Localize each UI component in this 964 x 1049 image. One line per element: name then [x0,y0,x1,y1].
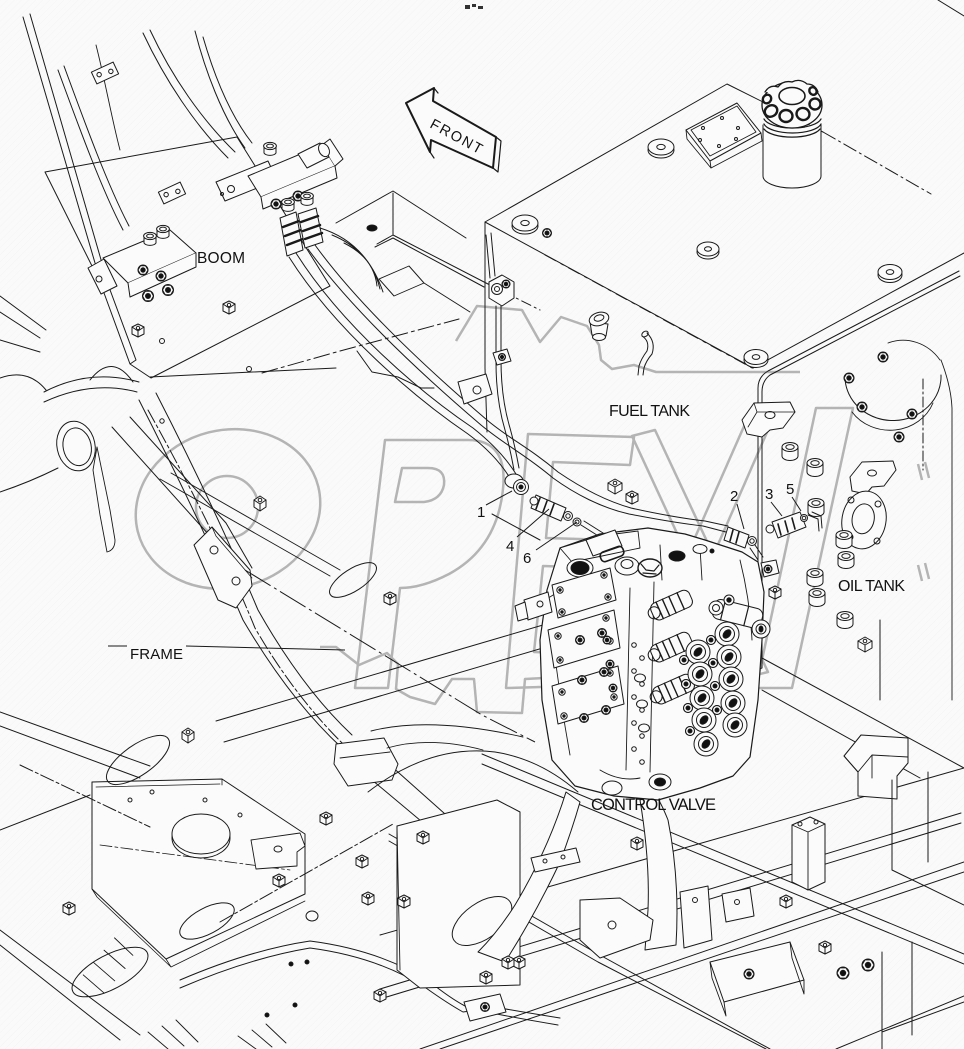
svg-text:4: 4 [506,538,514,555]
svg-text:CONTROL VALVE: CONTROL VALVE [591,796,716,814]
svg-text:3: 3 [765,486,773,503]
svg-text:2: 2 [730,488,738,505]
svg-text:FRAME: FRAME [130,646,183,663]
svg-text:BOOM: BOOM [197,250,245,267]
svg-text:OIL TANK: OIL TANK [838,578,905,595]
svg-text:6: 6 [523,550,531,567]
svg-text:FUEL TANK: FUEL TANK [609,403,690,420]
svg-text:1: 1 [477,504,485,521]
svg-text:5: 5 [786,481,794,498]
